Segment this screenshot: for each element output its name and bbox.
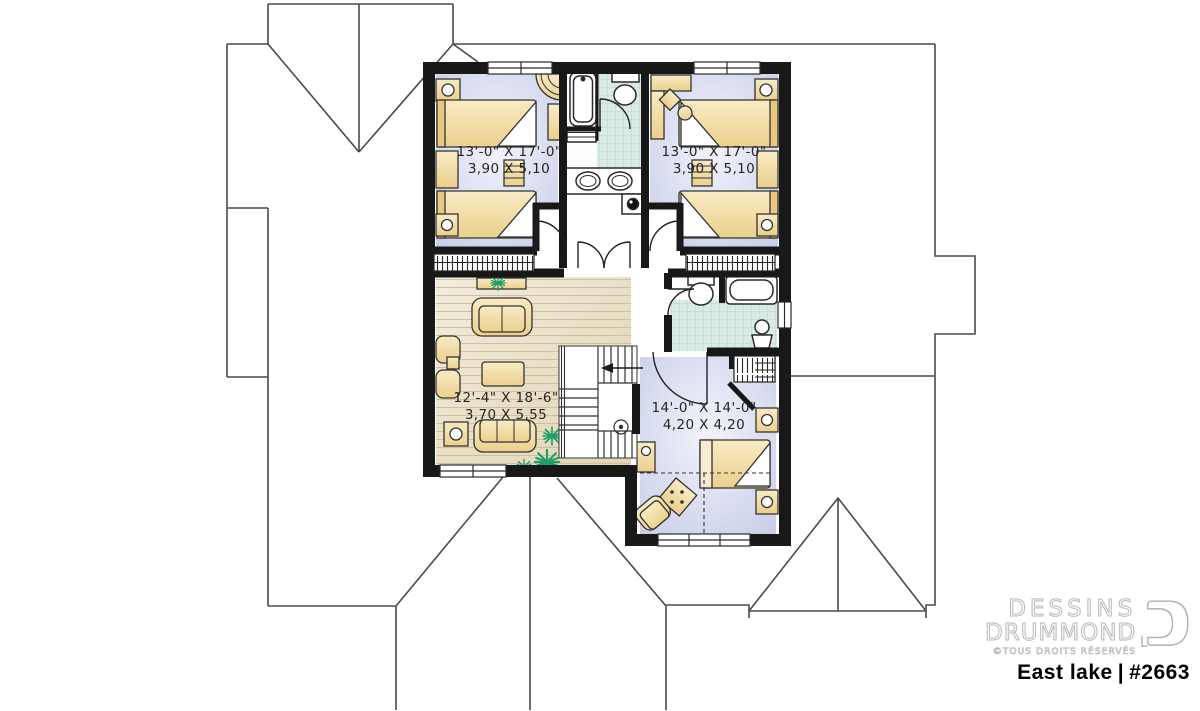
window-living-bottom [440, 465, 506, 477]
lamp-icon [442, 220, 453, 231]
label-bedroom-top-left-imperial: 13'-0" X 17'-0" [457, 144, 562, 160]
closet-bedroom-top-right [686, 254, 775, 271]
brand-name-line1: DESSINS [985, 598, 1136, 621]
label-living-imperial: 12'-4" X 18'-6" [454, 390, 559, 406]
label-master-imperial: 14'-0" X 14'-0" [652, 400, 757, 416]
staircase [559, 346, 643, 458]
label-living-metric: 3,70 X 5,55 [465, 407, 547, 423]
brand-watermark: DESSINS DRUMMOND ©TOUS DROITS RÉSERVÉS E… [985, 598, 1190, 685]
side-table [447, 357, 459, 369]
label-bedroom-top-right-metric: 3,90 X 5,10 [673, 161, 755, 177]
plan-title-separator: | [1113, 661, 1129, 684]
closet-master [734, 356, 775, 382]
lamp-icon [762, 415, 773, 426]
headboard [770, 100, 778, 147]
vanity [566, 168, 642, 194]
pillow [700, 440, 712, 488]
sofa [474, 420, 536, 452]
toilet-tank [612, 73, 639, 82]
lamp-icon [442, 84, 454, 96]
lamp-icon [762, 220, 773, 231]
lamp-icon [762, 497, 773, 508]
window-bedroom-right-top [694, 62, 760, 74]
label-master-metric: 4,20 X 4,20 [663, 417, 745, 433]
headboard [437, 100, 445, 147]
label-bedroom-top-right-imperial: 13'-0" X 17'-0" [662, 144, 767, 160]
coffee-table [482, 362, 524, 386]
brand-rights-text: ©TOUS DROITS RÉSERVÉS [985, 647, 1136, 657]
floor-plan-page: 13'-0" X 17'-0" 3,90 X 5,10 13'-0" X 17'… [0, 0, 1200, 711]
toilet-bowl [614, 85, 636, 105]
plan-name: East lake [1017, 661, 1113, 684]
plan-number: #2663 [1129, 661, 1190, 684]
brand-name-line2: DRUMMOND [985, 621, 1136, 645]
door-walkin-left [578, 242, 604, 268]
door-walkin-right [604, 242, 630, 268]
lamp-icon [642, 447, 651, 456]
side-table-lamp [444, 422, 468, 446]
lamp-icon [760, 84, 772, 96]
window-bedroom-left-top [488, 62, 552, 74]
closet-bedroom-top-left [434, 254, 534, 271]
plan-title: East lake|#2663 [985, 661, 1190, 685]
door-bedroom-right [650, 221, 680, 251]
drummond-d-logo-icon [1140, 598, 1190, 656]
window-bathroom-right [778, 302, 791, 328]
floor-bathroom-top-tile [597, 70, 642, 168]
faucet-icon [581, 77, 586, 82]
laundry-chute [622, 194, 644, 214]
toilet-bowl [689, 283, 713, 305]
window-master-bottom [658, 534, 750, 546]
label-bedroom-top-left-metric: 3,90 X 5,10 [468, 161, 550, 177]
nightstand [436, 151, 458, 188]
loveseat [472, 298, 532, 336]
